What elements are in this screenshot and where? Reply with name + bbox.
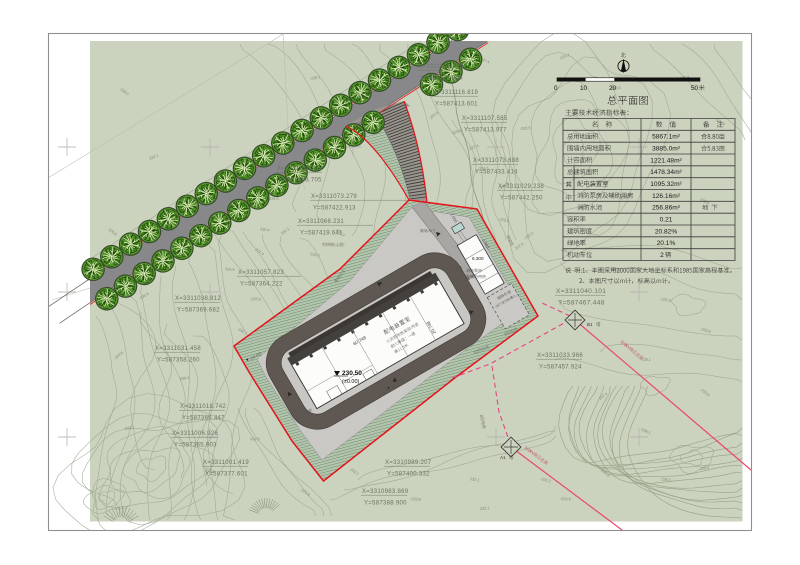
svg-text:X=3311006.926: X=3311006.926 <box>172 431 218 437</box>
svg-text:X=3311107.585: X=3311107.585 <box>462 116 508 122</box>
svg-text:Y=587377.601: Y=587377.601 <box>205 472 248 478</box>
svg-text:B1: B1 <box>587 322 593 327</box>
svg-text:Y=587467.448: Y=587467.448 <box>558 300 605 307</box>
svg-text:10: 10 <box>580 85 588 92</box>
svg-text:X=3310983.869: X=3310983.869 <box>362 489 409 495</box>
svg-text:50: 50 <box>691 85 699 92</box>
svg-text:Y=587422.913: Y=587422.913 <box>313 206 356 212</box>
svg-text:1478.34m²: 1478.34m² <box>650 169 682 176</box>
svg-text:0.21: 0.21 <box>660 217 673 224</box>
svg-text:-226.5: -226.5 <box>250 297 261 302</box>
svg-text:X=3311033.966: X=3311033.966 <box>537 353 583 359</box>
svg-text:-226.5: -226.5 <box>268 197 279 201</box>
svg-text:5867.1m²: 5867.1m² <box>652 134 681 141</box>
svg-text:-233.6: -233.6 <box>560 497 571 501</box>
svg-text:X=3311018.742: X=3311018.742 <box>180 404 226 410</box>
svg-text:Y=587425.905: Y=587425.905 <box>420 76 463 82</box>
svg-text:A1: A1 <box>500 455 506 460</box>
svg-text:X=3311102.193: X=3311102.193 <box>277 166 323 172</box>
svg-text:232.1: 232.1 <box>480 506 490 511</box>
svg-text:Y=587366.447: Y=587366.447 <box>182 416 225 422</box>
svg-text:6.300: 6.300 <box>472 256 484 261</box>
svg-text:Y=587388.900: Y=587388.900 <box>364 501 407 507</box>
svg-text:Y=587403.705: Y=587403.705 <box>279 178 322 184</box>
svg-text:Y=587365.903: Y=587365.903 <box>174 443 217 449</box>
svg-text:X=3311116.819: X=3311116.819 <box>433 90 478 96</box>
svg-text:20: 20 <box>609 85 617 92</box>
svg-text:X=3311057.823: X=3311057.823 <box>238 270 284 276</box>
svg-text:2: 2 <box>660 252 664 259</box>
svg-text:20.82%: 20.82% <box>655 228 678 235</box>
svg-text:Y=587442.250: Y=587442.250 <box>500 196 543 202</box>
svg-text:X=3311001.419: X=3311001.419 <box>203 460 249 466</box>
svg-text:Y=587400.332: Y=587400.332 <box>387 472 430 478</box>
svg-text:Y=587369.682: Y=587369.682 <box>177 308 220 314</box>
svg-text:3885.0m²: 3885.0m² <box>652 146 681 153</box>
svg-text:229.0: 229.0 <box>250 437 260 441</box>
svg-text:Y=587364.222: Y=587364.222 <box>240 282 283 288</box>
svg-text:Y=587413.977: Y=587413.977 <box>464 128 507 134</box>
svg-text:X=3311031.458: X=3311031.458 <box>155 346 201 352</box>
svg-text:X=3310989.207: X=3310989.207 <box>385 460 432 466</box>
svg-text:X=3311121.229: X=3311121.229 <box>418 64 464 70</box>
svg-text:Y=587419.641: Y=587419.641 <box>300 231 343 237</box>
svg-text:Y=587413.601: Y=587413.601 <box>435 102 478 108</box>
svg-text:(±0.00): (±0.00) <box>342 379 360 385</box>
svg-text:Y=587433.414: Y=587433.414 <box>475 170 518 176</box>
svg-text:X=3311073.688: X=3311073.688 <box>473 158 519 164</box>
svg-text:Y=587457.924: Y=587457.924 <box>539 365 582 371</box>
svg-text:1095.32m²: 1095.32m² <box>650 181 682 188</box>
svg-text:-233.6: -233.6 <box>410 497 421 502</box>
svg-text:126.16m²: 126.16m² <box>652 193 681 200</box>
svg-text:X=3311038.812: X=3311038.812 <box>175 296 221 302</box>
svg-text:20.1%: 20.1% <box>657 240 676 247</box>
svg-text:1221.48m²: 1221.48m² <box>650 157 682 164</box>
svg-text:X=3311068.231: X=3311068.231 <box>298 219 344 225</box>
svg-text:256.86m²: 256.86m² <box>652 205 681 212</box>
svg-text:X=3311073.279: X=3311073.279 <box>311 194 357 200</box>
svg-text:X=3311029.238: X=3311029.238 <box>498 184 544 190</box>
svg-text:X=3311040.101: X=3311040.101 <box>556 288 606 295</box>
svg-text:Y=587358.260: Y=587358.260 <box>157 358 200 364</box>
svg-text:0: 0 <box>554 85 558 92</box>
